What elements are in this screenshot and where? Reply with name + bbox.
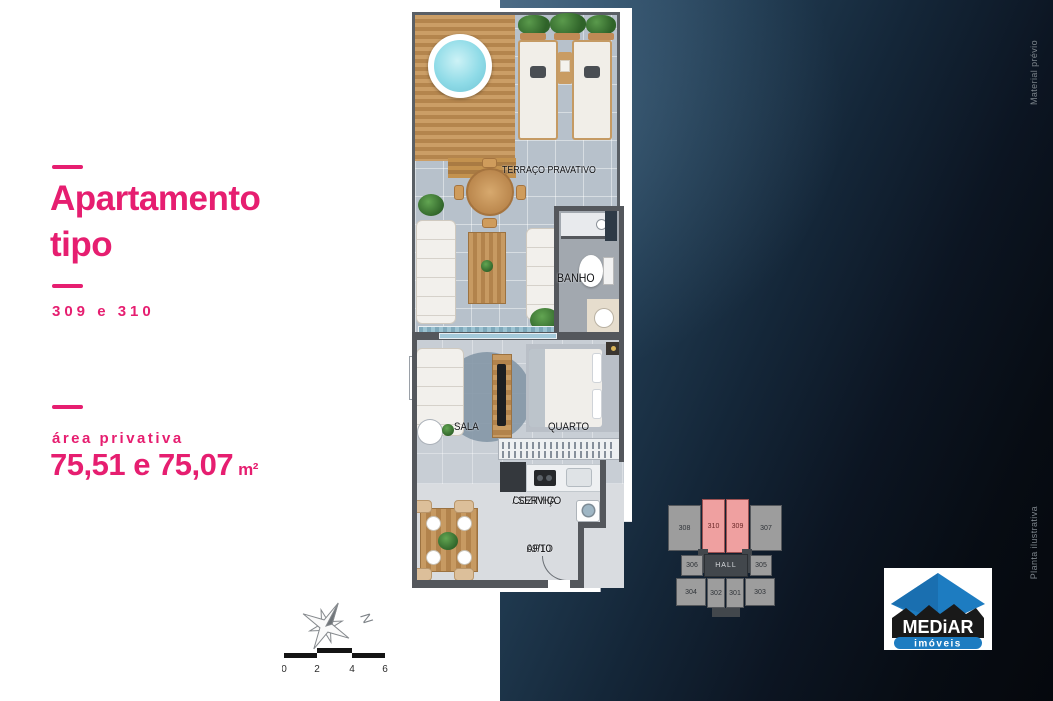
washer-door xyxy=(583,505,594,516)
plate xyxy=(458,517,471,530)
floor-plan: TERRAÇO PRAVATIVO BANHO SALA xyxy=(408,8,632,592)
logo-tagline-text: imóveis xyxy=(914,639,962,650)
apto-label-line2: 09/10 xyxy=(527,544,551,556)
keyplan-hall: HALL xyxy=(704,554,748,577)
wall-right-upper xyxy=(619,340,624,462)
scale-segment xyxy=(352,653,385,658)
scale-tick-4: 4 xyxy=(349,664,355,675)
closet-rail xyxy=(502,442,616,449)
living-label: SALA xyxy=(454,422,479,434)
page: Apartamento tipo 309 e 310 área privativ… xyxy=(0,0,1053,701)
title-line-1: Apartamento xyxy=(50,176,260,222)
cooktop xyxy=(534,470,556,486)
pillow xyxy=(592,389,602,419)
planter-box xyxy=(520,33,546,40)
watermark-planta-ilustrativa: Planta ilustrativa xyxy=(1029,506,1039,579)
accent-dash-middle xyxy=(52,284,83,288)
kitchen-label-line2: / SERVIÇO xyxy=(512,496,561,508)
plate xyxy=(427,551,440,564)
planter-box xyxy=(588,33,614,40)
wall-right-service xyxy=(600,460,606,526)
keyplan-unit-305: 305 xyxy=(750,555,772,576)
chair xyxy=(454,500,474,513)
closet xyxy=(498,438,620,460)
table-plant xyxy=(438,532,458,550)
keyplan-unit-301: 301 xyxy=(726,578,744,608)
keyplan-unit-310-highlighted: 310 xyxy=(702,499,725,553)
planter-box xyxy=(554,33,580,40)
stool xyxy=(454,185,464,200)
accent-dash-top xyxy=(52,165,83,169)
compass-north-letter: N xyxy=(357,610,376,627)
private-area-value: 75,51 e 75,07m² xyxy=(50,447,258,483)
compass-svg: N 0 2 4 6 xyxy=(282,596,394,692)
stool xyxy=(482,218,497,228)
lounger-headrest xyxy=(584,66,600,78)
building-key-plan: 308 310 309 307 306 HALL 305 304 302 301… xyxy=(668,497,782,621)
lounger-headrest xyxy=(530,66,546,78)
lamp xyxy=(611,346,616,351)
compass-and-scale: N 0 2 4 6 xyxy=(282,596,394,692)
sun-lounger xyxy=(572,40,612,140)
bedroom-label: QUARTO xyxy=(548,422,589,434)
keyplan-unit-302: 302 xyxy=(707,578,725,608)
plunge-pool xyxy=(428,34,492,98)
stool xyxy=(482,158,497,168)
wall-left xyxy=(412,340,417,588)
sliding-glass-door xyxy=(440,334,556,338)
area-number: 75,51 e 75,07 xyxy=(50,447,233,482)
scale-segment xyxy=(284,653,317,658)
tv xyxy=(497,364,506,426)
keyplan-unit-308: 308 xyxy=(668,505,701,551)
side-table-top xyxy=(560,60,570,72)
plant xyxy=(442,424,454,436)
bath-label: BANHO xyxy=(557,272,595,285)
watermark-material-previo: Material prévio xyxy=(1029,40,1039,105)
private-area-label: área privativa xyxy=(52,430,184,447)
title-line-2: tipo xyxy=(50,222,260,268)
terrace-label: TERRAÇO PRAVATIVO xyxy=(502,166,596,177)
table-plant xyxy=(481,260,493,272)
planter-plants xyxy=(550,13,586,35)
wall-right-lower xyxy=(578,522,584,588)
closet-rail xyxy=(502,451,616,458)
living-side-table xyxy=(418,420,442,444)
plate xyxy=(427,517,440,530)
scale-bar: 0 2 4 6 xyxy=(282,648,388,675)
mediar-logo-svg: MEDiAR imóveis xyxy=(884,568,992,650)
kitchen-sink xyxy=(566,468,592,487)
scale-segment xyxy=(317,648,352,653)
bathroom-sink xyxy=(595,309,613,327)
area-unit: m² xyxy=(238,460,258,479)
scale-tick-0: 0 xyxy=(282,664,287,675)
mediar-logo: MEDiAR imóveis xyxy=(884,568,992,650)
sun-lounger xyxy=(518,40,558,140)
keyplan-unit-304: 304 xyxy=(676,578,706,606)
burner xyxy=(546,475,552,481)
scale-tick-2: 2 xyxy=(314,664,320,675)
shower-glass xyxy=(605,211,617,241)
stool xyxy=(516,185,526,200)
scale-tick-6: 6 xyxy=(382,664,388,675)
plate xyxy=(458,551,471,564)
toilet-tank xyxy=(603,257,614,285)
unit-numbers: 309 e 310 xyxy=(52,303,155,320)
accent-dash-bottom xyxy=(52,405,83,409)
keyplan-unit-303: 303 xyxy=(745,578,775,606)
terrace-sofa xyxy=(416,220,456,324)
planter-plants xyxy=(586,15,616,35)
pillow xyxy=(592,353,602,383)
fridge xyxy=(500,462,526,492)
keyplan-unit-309-highlighted: 309 xyxy=(726,499,749,553)
plant xyxy=(418,194,444,216)
entry-door-gap xyxy=(548,580,570,588)
logo-brand-text: MEDiAR xyxy=(903,617,974,637)
keyplan-stub xyxy=(712,608,740,617)
keyplan-unit-307: 307 xyxy=(750,505,782,551)
keyplan-unit-306: 306 xyxy=(681,555,703,576)
planter-plants xyxy=(518,15,550,35)
bed-blanket xyxy=(529,349,545,427)
page-title: Apartamento tipo xyxy=(50,176,260,268)
burner xyxy=(537,475,543,481)
